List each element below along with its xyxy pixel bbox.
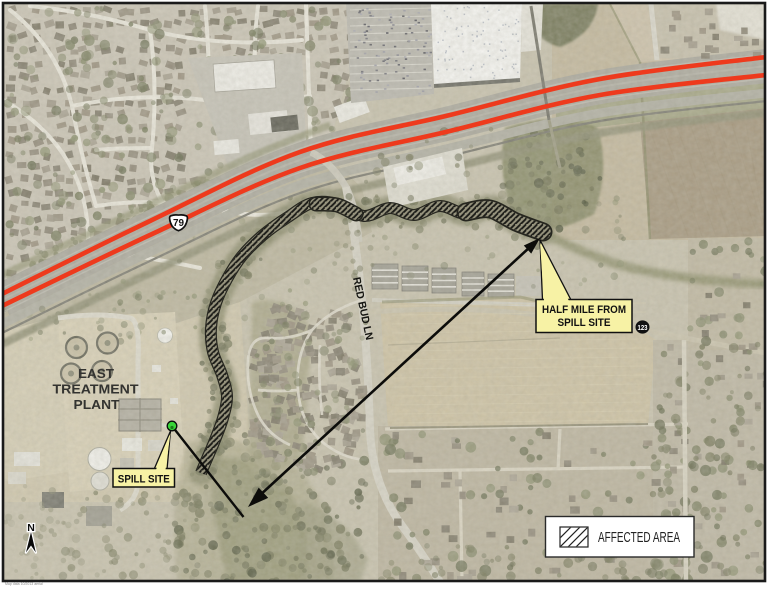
svg-text:123: 123 xyxy=(638,325,648,332)
svg-text:AFFECTED AREA: AFFECTED AREA xyxy=(598,530,680,546)
svg-text:SPILL SITE: SPILL SITE xyxy=(558,317,611,329)
svg-text:79: 79 xyxy=(173,217,184,229)
svg-text:SPILL SITE: SPILL SITE xyxy=(118,474,170,486)
svg-text:EAST: EAST xyxy=(78,366,114,381)
svg-text:Map data 10/2013 aerial: Map data 10/2013 aerial xyxy=(5,582,43,586)
svg-text:PLANT: PLANT xyxy=(74,397,120,412)
svg-text:TREATMENT: TREATMENT xyxy=(53,382,139,397)
svg-text:HALF MILE FROM: HALF MILE FROM xyxy=(542,304,626,316)
